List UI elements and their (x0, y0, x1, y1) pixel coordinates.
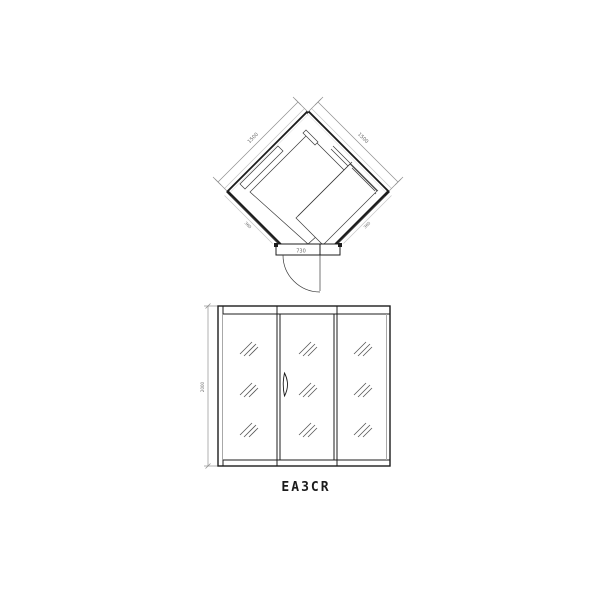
plan-glass-inner-left (231, 196, 278, 243)
plan-door-swing-arc (283, 255, 320, 292)
dim-label-front-glass-right: 360 (362, 220, 371, 229)
plan-back-wall-left (228, 112, 308, 192)
plan-glass-dim-line-left (225, 196, 273, 244)
plan-front-glass-left (228, 192, 280, 244)
height-dimension: 2000 (200, 304, 218, 469)
plan-wall-bench (240, 146, 283, 189)
dim-label-back-wall-left: 1500 (247, 132, 260, 145)
plan-corner-shelf (303, 130, 318, 145)
dim-label-front-glass-left: 360 (244, 220, 253, 229)
plan-dimension-left: 1500 (213, 97, 309, 193)
plan-extent-line-left (225, 109, 305, 189)
drawing-sheet: 1500 1500 360 360 (0, 0, 600, 600)
door-jamb-right (338, 243, 342, 247)
dim-label-height: 2000 (200, 381, 205, 392)
elevation-view: 2000 (200, 304, 390, 469)
plan-view: 1500 1500 360 360 (213, 97, 403, 292)
technical-drawing: 1500 1500 360 360 (0, 0, 600, 600)
door-jamb-left (274, 243, 278, 247)
dim-label-door-width: 730 (296, 249, 306, 255)
dim-label-back-wall-right: 1500 (356, 132, 369, 145)
model-label: EA3CR (281, 480, 330, 495)
elevation-frame (218, 306, 390, 466)
plan-door: 730 (274, 243, 342, 255)
plan-bench-main (296, 162, 377, 245)
